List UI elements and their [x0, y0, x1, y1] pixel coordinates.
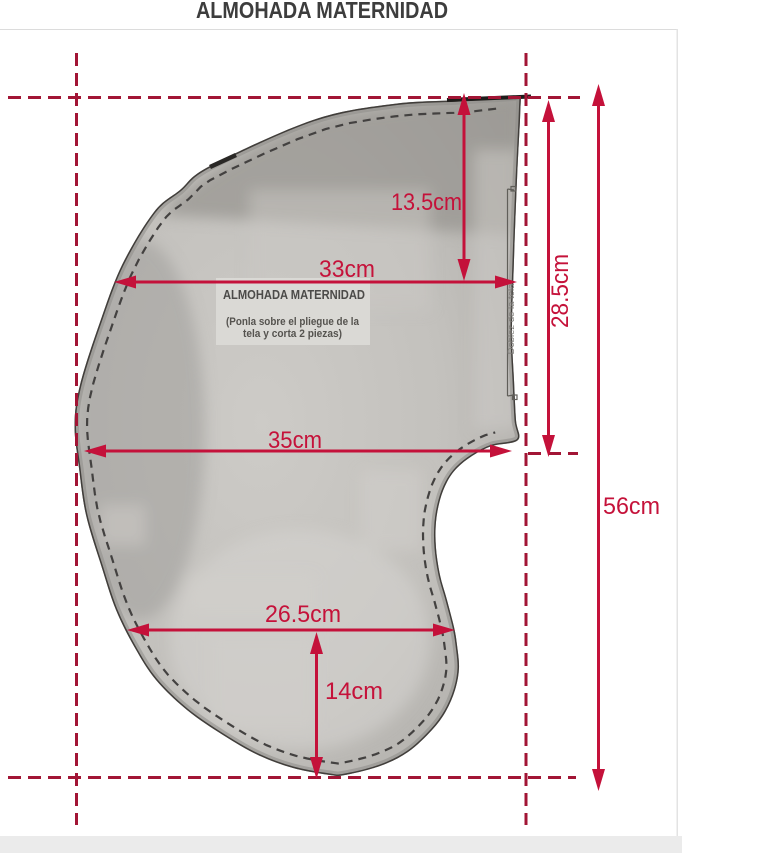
svg-text:(Ponla sobre el pliegue de la: (Ponla sobre el pliegue de la: [226, 316, 360, 328]
svg-text:ALMOHADA MATERNIDAD: ALMOHADA MATERNIDAD: [223, 288, 365, 302]
svg-text:35cm: 35cm: [268, 427, 322, 454]
svg-text:Doblez de la tela: Doblez de la tela: [506, 283, 517, 354]
svg-text:14cm: 14cm: [325, 678, 383, 705]
svg-text:13.5cm: 13.5cm: [391, 189, 462, 216]
svg-text:ALMOHADA MATERNIDAD: ALMOHADA MATERNIDAD: [196, 0, 448, 23]
svg-text:28.5cm: 28.5cm: [547, 254, 574, 328]
svg-text:26.5cm: 26.5cm: [265, 601, 341, 628]
svg-text:56cm: 56cm: [603, 493, 660, 520]
svg-text:33cm: 33cm: [319, 256, 375, 283]
svg-text:tela y corta 2 piezas): tela y corta 2 piezas): [243, 328, 342, 340]
